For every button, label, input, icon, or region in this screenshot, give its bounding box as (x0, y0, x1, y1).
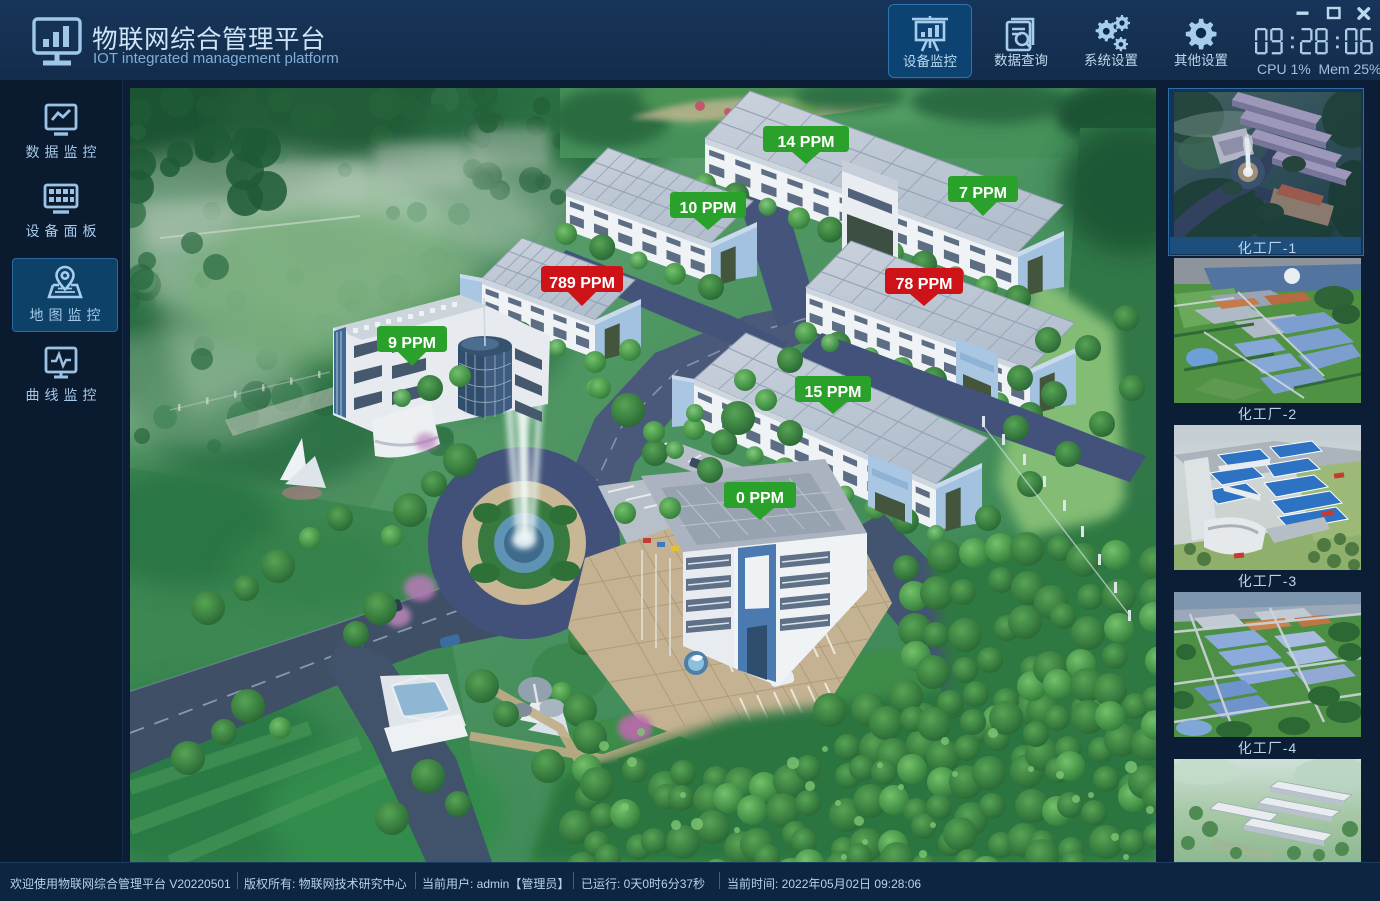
svg-text:14 PPM: 14 PPM (778, 134, 835, 151)
svg-text:0 PPM: 0 PPM (736, 490, 784, 507)
svg-text:9 PPM: 9 PPM (388, 335, 436, 352)
svg-text:10 PPM: 10 PPM (680, 200, 737, 217)
svg-text:78 PPM: 78 PPM (896, 276, 953, 293)
svg-text:15 PPM: 15 PPM (805, 384, 862, 401)
svg-text:7 PPM: 7 PPM (959, 185, 1007, 202)
svg-text:789 PPM: 789 PPM (549, 275, 615, 292)
